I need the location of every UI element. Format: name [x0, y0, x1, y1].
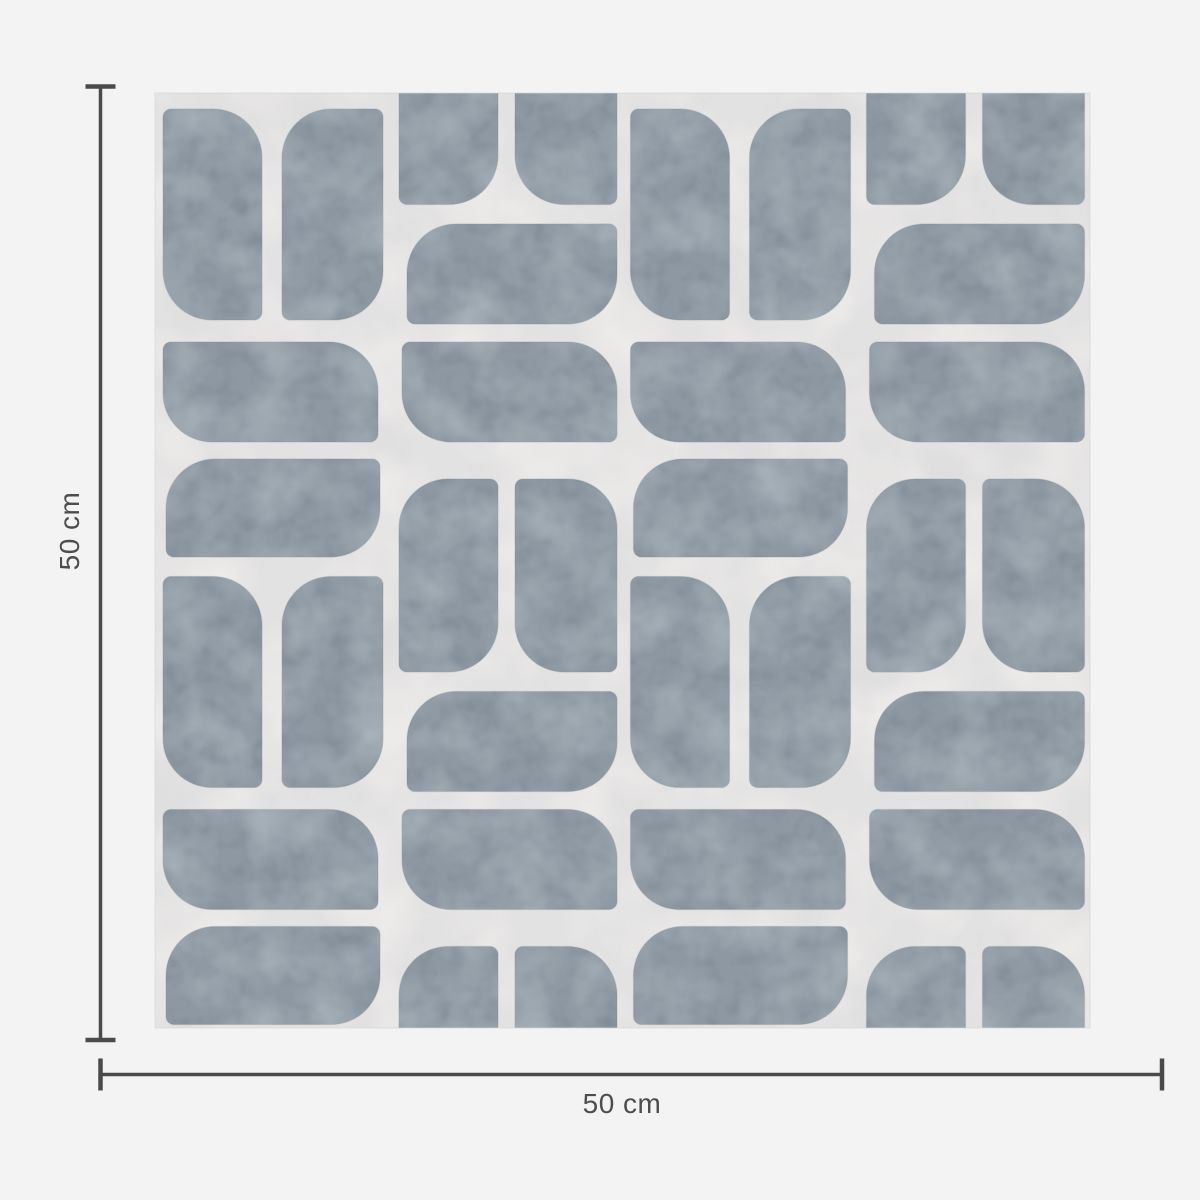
diagram-canvas: 50 cm 50 cm [0, 0, 1200, 1200]
height-dimension: 50 cm [54, 87, 116, 1041]
width-dimension-label: 50 cm [583, 1088, 662, 1119]
width-dimension: 50 cm [101, 1059, 1163, 1120]
tile-pattern [155, 93, 1090, 1028]
tile-swatch [155, 93, 1090, 1028]
product-dimension-diagram: 50 cm 50 cm [0, 0, 1200, 1200]
height-dimension-label: 50 cm [54, 492, 85, 571]
